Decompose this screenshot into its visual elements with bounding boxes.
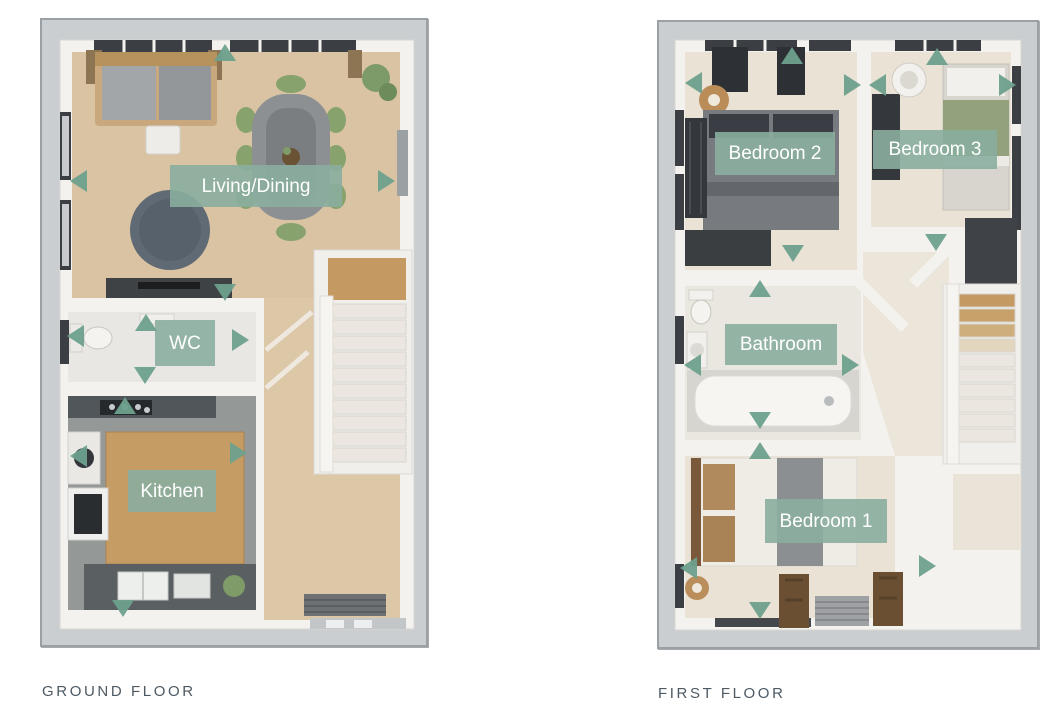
ground-floor-plan: Living/Dining WC Kitchen: [40, 18, 428, 647]
arrow-right-icon: [842, 354, 859, 376]
arrow-right-icon: [378, 170, 395, 192]
arrow-up-icon: [926, 48, 948, 65]
appliance-unit: [68, 488, 108, 540]
arrow-left-icon: [684, 354, 701, 376]
room-label-living-dining: Living/Dining: [170, 165, 342, 207]
arrow-right-icon: [999, 74, 1016, 96]
arrow-up-icon: [214, 44, 236, 61]
first-floor-plan: Bedroom 2 Bedroom 3 Bathroom Bedroom 1: [657, 20, 1039, 649]
arrow-up-icon: [135, 314, 157, 331]
room-label-bedroom-2: Bedroom 2: [715, 132, 835, 175]
room-label-bedroom-3: Bedroom 3: [873, 130, 997, 169]
floorplan-page: Living/Dining WC Kitchen GROUND FLOOR: [0, 0, 1061, 717]
arrow-down-icon: [749, 602, 771, 619]
kitchen-sink-counter: [84, 564, 256, 610]
first-floor-render: [659, 22, 1037, 647]
arrow-left-icon: [70, 170, 87, 192]
arrow-down-icon: [112, 600, 134, 617]
arrow-down-icon: [749, 412, 771, 429]
room-label-bathroom: Bathroom: [725, 324, 837, 365]
kitchen-worktop: [68, 396, 216, 418]
arrow-up-icon: [749, 280, 771, 297]
arrow-up-icon: [749, 442, 771, 459]
room-label-wc: WC: [155, 320, 215, 366]
sofa: [95, 52, 217, 126]
room-label-bedroom-1: Bedroom 1: [765, 499, 887, 543]
arrow-down-icon: [925, 234, 947, 251]
arrow-up-icon: [781, 47, 803, 64]
room-label-kitchen: Kitchen: [128, 470, 216, 512]
arrow-right-icon: [919, 555, 936, 577]
arrow-down-icon: [782, 245, 804, 262]
arrow-down-icon: [214, 284, 236, 301]
arrow-right-icon: [232, 329, 249, 351]
arrow-left-icon: [680, 557, 697, 579]
arrow-left-icon: [67, 325, 84, 347]
arrow-left-icon: [685, 72, 702, 94]
first-floor-caption: FIRST FLOOR: [658, 685, 786, 702]
arrow-left-icon: [869, 74, 886, 96]
arrow-up-icon: [114, 397, 136, 414]
arrow-left-icon: [70, 445, 87, 467]
ground-floor-caption: GROUND FLOOR: [42, 683, 196, 700]
stairs: [943, 284, 1021, 464]
coffee-table: [146, 126, 180, 154]
arrow-right-icon: [844, 74, 861, 96]
store-floor: [953, 474, 1021, 550]
arrow-right-icon: [230, 442, 247, 464]
arrow-down-icon: [134, 367, 156, 384]
stairs: [314, 250, 412, 474]
